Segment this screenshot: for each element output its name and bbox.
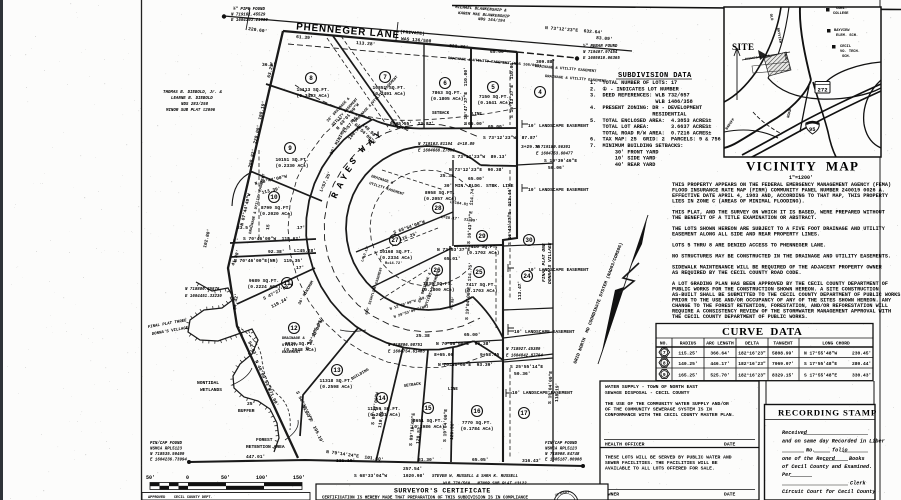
svg-text:6. TAX MAP: 25 GRID: 2 PARC: 6. TAX MAP: 25 GRID: 2 PARCELS: 9 & 756 (590, 137, 721, 143)
svg-text:(0.2224 AC±): (0.2224 AC±) (247, 284, 280, 290)
svg-text:330.43': 330.43' (852, 372, 871, 378)
svg-text:N 718880.25876: N 718880.25876 (185, 288, 220, 292)
svg-text:8: 8 (309, 75, 313, 82)
svg-text:50': 50' (146, 475, 155, 481)
svg-text:LINE: LINE (448, 388, 458, 392)
svg-text:6: 6 (443, 80, 447, 87)
svg-text:¾" PIPE FOUND: ¾" PIPE FOUND (233, 7, 265, 12)
svg-text:15: 15 (265, 224, 271, 230)
svg-text:LINE: LINE (472, 113, 482, 117)
svg-text:3+29.76: 3+29.76 (521, 144, 541, 150)
svg-text:7: 7 (383, 74, 387, 81)
svg-text:230.45': 230.45' (852, 351, 871, 357)
svg-text:E 1604236.73994: E 1604236.73994 (150, 459, 187, 463)
svg-text:Per: Per (782, 472, 791, 478)
svg-text:N 70°46'00"E(NR) 119.35': N 70°46'00"E(NR) 119.35' (234, 258, 303, 264)
svg-text:TOTAL LOT AREA: 3.6637 A: TOTAL LOT AREA: 3.6637 ACRES± (590, 124, 711, 130)
svg-text:25: 25 (475, 269, 483, 276)
svg-text:5808.99': 5808.99' (772, 351, 794, 357)
svg-text:SITE: SITE (732, 42, 755, 52)
svg-text:DONNA'S VILLAGE: DONNA'S VILLAGE (547, 242, 553, 284)
svg-text:S 16°43'37"E 113.44': S 16°43'37"E 113.44' (507, 187, 513, 245)
svg-text:30' FRONT YARD: 30' FRONT YARD (590, 149, 659, 155)
svg-text:LEANNE B. DIEBOLD: LEANNE B. DIEBOLD (171, 97, 213, 101)
svg-text:N 16°47'37"E 110.00': N 16°47'37"E 110.00' (463, 67, 469, 125)
svg-text:10' LANDSCAPE EASEMENT: 10' LANDSCAPE EASEMENT (528, 187, 589, 193)
svg-text:10' LANDSCAPE EASEMENT: 10' LANDSCAPE EASEMENT (528, 123, 589, 129)
svg-text:100': 100' (256, 475, 268, 481)
svg-text:(0.1805 AC±): (0.1805 AC±) (430, 96, 463, 102)
svg-text:RESIDENTIAL: RESIDENTIAL (590, 112, 687, 118)
svg-text:316.43': 316.43' (522, 458, 541, 464)
svg-text:RADIUS: RADIUS (680, 341, 697, 347)
svg-text:NSMCA RPL5123: NSMCA RPL5123 (545, 448, 577, 452)
svg-text:7: 7 (663, 350, 666, 356)
svg-text:1. TOTAL NUMBER OF LOTS: 17: 1. TOTAL NUMBER OF LOTS: 17 (590, 80, 677, 86)
svg-text:95: 95 (809, 127, 815, 133)
svg-text:UTILITY: UTILITY (282, 344, 299, 348)
svg-text:7069.07': 7069.07' (772, 361, 794, 367)
svg-text:Books: Books (849, 456, 865, 462)
svg-text:(0.2020 AC±): (0.2020 AC±) (259, 211, 292, 217)
svg-text:DATE: DATE (724, 442, 735, 448)
svg-text:NDS 283/258: NDS 283/258 (181, 102, 209, 107)
svg-text:N 719161.45529: N 719161.45529 (231, 14, 266, 18)
svg-text:VO. TECH.: VO. TECH. (840, 50, 860, 54)
svg-text:FOREST: FOREST (256, 437, 273, 443)
svg-text:RECORDING STAMP: RECORDING STAMP (778, 408, 877, 418)
svg-text:120.90': 120.90' (449, 421, 456, 441)
svg-text:(0.1641 AC±): (0.1641 AC±) (477, 100, 510, 106)
svg-text:VICINITY MAP: VICINITY MAP (746, 159, 859, 174)
svg-text:(0.3483 AC±): (0.3483 AC±) (296, 93, 329, 99)
svg-text:TANGENT: TANGENT (773, 341, 793, 347)
svg-text:S 19°04'00"E: S 19°04'00"E (442, 409, 449, 443)
svg-text:446.17': 446.17' (710, 361, 729, 367)
svg-text:CONFORMANCE WITH THE CECIL COU: CONFORMANCE WITH THE CECIL COUNTY MASTER… (605, 412, 734, 418)
svg-text:N 17°55'48"W: N 17°55'48"W (804, 351, 837, 357)
svg-text:N 718908.84748: N 718908.84748 (545, 453, 580, 457)
svg-text:THESE LOTS WILL BE SERVED BY P: THESE LOTS WILL BE SERVED BY PUBLIC WATE… (605, 455, 732, 461)
svg-text:182°16'23": 182°16'23" (738, 361, 766, 367)
svg-text:30' MIN. BLDG.: 30' MIN. BLDG. (444, 183, 483, 189)
svg-text:N 719189.56301: N 719189.56301 (536, 146, 571, 150)
svg-text:DELTA: DELTA (745, 341, 759, 347)
svg-text:S 25°55'14"E: S 25°55'14"E (510, 364, 543, 370)
svg-text:and on same day Recorded in Li: and on same day Recorded in Liber (782, 439, 885, 445)
svg-text:257.54': 257.54' (403, 466, 422, 472)
svg-text:81.30': 81.30' (418, 457, 435, 463)
svg-text:N 70°56'00"E 90.38': N 70°56'00"E 90.38' (436, 341, 491, 347)
svg-text:E 1604754.61463: E 1604754.61463 (388, 351, 425, 355)
svg-text:10168 SQ.FT.: 10168 SQ.FT. (379, 249, 412, 255)
svg-text:THE BENEFIT OF A TITLE EXAMINA: THE BENEFIT OF A TITLE EXAMINATION OR AB… (672, 215, 817, 221)
svg-text:STEVEN W. RUSSELL & SARA K. RU: STEVEN W. RUSSELL & SARA K. RUSSELL (432, 475, 519, 479)
svg-text:S 73°12'23"W 89.13': S 73°12'23"W 89.13' (452, 154, 507, 160)
svg-text:NONTIDAL: NONTIDAL (197, 380, 219, 386)
svg-text:65.01': 65.01' (444, 256, 461, 262)
svg-text:N 70°56'00"E 93.39': N 70°56'00"E 93.39' (438, 362, 493, 368)
svg-text:E 1604451.33230: E 1604451.33230 (185, 295, 222, 299)
svg-text:ARC LENGTH: ARC LENGTH (706, 341, 734, 347)
svg-text:MINOR SUB PLAT #2096: MINOR SUB PLAT #2096 (165, 109, 216, 113)
svg-text:23.5': 23.5' (237, 225, 251, 231)
svg-text:15113 SQ.FT.: 15113 SQ.FT. (296, 87, 329, 93)
svg-text:ELEM. SCH.: ELEM. SCH. (836, 34, 858, 38)
svg-text:24: 24 (523, 273, 531, 280)
svg-text:LIES IN ZONE C (AREAS OF MINIM: LIES IN ZONE C (AREAS OF MINIMAL FLOODIN… (672, 199, 805, 205)
svg-text:S 16°43'37"E 110.00': S 16°43'37"E 110.00' (509, 60, 515, 118)
svg-text:of Cecil County and Examined.: of Cecil County and Examined. (782, 464, 872, 470)
svg-text:25': 25' (247, 401, 255, 407)
svg-text:17: 17 (520, 410, 528, 417)
svg-text:65.00': 65.00' (468, 176, 485, 182)
svg-text:10' LANDSCAPE EASEMENT: 10' LANDSCAPE EASEMENT (528, 267, 589, 273)
svg-text:AVAILABLE TO ALL LOTS OFFERED: AVAILABLE TO ALL LOTS OFFERED FOR SALE. (605, 466, 715, 472)
svg-text:COLLEGE: COLLEGE (833, 12, 849, 16)
svg-text:STBK. LINE: STBK. LINE (486, 183, 514, 189)
svg-text:THOMAS B. DIEBOLD, Jr. &: THOMAS B. DIEBOLD, Jr. & (163, 91, 223, 95)
svg-text:R=14.72': R=14.72' (385, 261, 402, 266)
svg-text:RETENTION AREA: RETENTION AREA (246, 444, 285, 450)
svg-text:150': 150' (293, 475, 305, 481)
svg-text:25.38: 25.38 (440, 173, 454, 179)
svg-text:LOTS 5 THRU 8 ARE DENIED ACCES: LOTS 5 THRU 8 ARE DENIED ACCESS TO PHENN… (672, 243, 826, 249)
svg-text:one of the Record: one of the Record (782, 456, 836, 462)
svg-text:17': 17' (296, 265, 304, 271)
svg-text:8958 SQ.FT.: 8958 SQ.FT. (425, 190, 455, 196)
svg-text:Clerk: Clerk (850, 481, 866, 487)
svg-text:2. ① - INDICATES LOT NUMBER: 2. ① - INDICATES LOT NUMBER (590, 86, 680, 92)
svg-text:Circuit Court for Cecil County: Circuit Court for Cecil County (782, 489, 876, 495)
svg-text:FINAL PLAT ONE: FINAL PLAT ONE (541, 243, 547, 282)
svg-text:S 73°12'23"W 87.87': S 73°12'23"W 87.87' (483, 135, 538, 141)
svg-text:FIN/CAP FOUND: FIN/CAP FOUND (545, 441, 577, 446)
svg-text:SURVEYOR'S CERTIFICATE: SURVEYOR'S CERTIFICATE (394, 488, 491, 495)
svg-text:S 19°04'00"E: S 19°04'00"E (547, 371, 554, 405)
svg-text:272: 272 (818, 87, 829, 94)
svg-text:N 72°03'37"E: N 72°03'37"E (437, 247, 470, 253)
svg-text:40' REAR YARD: 40' REAR YARD (590, 162, 655, 168)
svg-text:9: 9 (288, 145, 292, 152)
svg-text:7863 SQ.FT.: 7863 SQ.FT. (432, 90, 462, 96)
svg-text:Received: Received (782, 430, 808, 436)
svg-text:7. MINIMUM BUILDING SETBACKS:: 7. MINIMUM BUILDING SETBACKS: (590, 143, 683, 149)
svg-text:525.70': 525.70' (710, 372, 729, 378)
svg-text:165.25': 165.25' (678, 372, 697, 378)
svg-text:SEWAGE DISPOSAL - CECIL COUNTY: SEWAGE DISPOSAL - CECIL COUNTY (605, 390, 690, 396)
svg-text:12: 12 (290, 325, 298, 332)
svg-text:309.88': 309.88' (536, 59, 555, 65)
svg-text:50': 50' (221, 475, 230, 481)
svg-text:0: 0 (186, 475, 189, 481)
svg-text:AS REQUIRED BY THE CECIL COUNT: AS REQUIRED BY THE CECIL COUNTY ROAD COD… (672, 270, 802, 276)
svg-text:65.00': 65.00' (468, 121, 485, 127)
svg-text:27: 27 (391, 237, 399, 244)
svg-text:10' SIDE YARD: 10' SIDE YARD (590, 156, 655, 162)
svg-text:10' LANDSCAPE EASEMENT: 10' LANDSCAPE EASEMENT (512, 390, 573, 396)
svg-text:S 19°39'46"E: S 19°39'46"E (544, 158, 577, 164)
svg-text:EASEMENT: EASEMENT (282, 351, 301, 355)
svg-text:29: 29 (478, 233, 486, 240)
svg-text:7150 SQ.FT.: 7150 SQ.FT. (479, 94, 509, 100)
svg-text:BUFFER: BUFFER (238, 408, 255, 414)
svg-text:65.00': 65.00' (490, 49, 507, 55)
svg-text:No.: No. (806, 448, 815, 454)
svg-text:SEWER FACILITIES. THE FACILITI: SEWER FACILITIES. THE FACILITIES WILL BE (605, 460, 718, 466)
svg-text:16: 16 (473, 408, 481, 415)
svg-text:E 1604668.27802: E 1604668.27802 (418, 150, 455, 154)
svg-text:50.36': 50.36' (514, 371, 531, 377)
svg-text:NSMCA RPL5123: NSMCA RPL5123 (150, 448, 182, 452)
svg-text:SETBACK: SETBACK (432, 112, 450, 116)
svg-text:4: 4 (538, 89, 542, 96)
svg-text:E 1604193.21630: E 1604193.21630 (231, 19, 268, 23)
svg-text:PIN/CAP FOUND: PIN/CAP FOUND (150, 441, 182, 446)
svg-text:9: 9 (663, 372, 666, 378)
svg-text:E 1604842.87784: E 1604842.87784 (506, 355, 543, 359)
svg-text:DRAINAGE &: DRAINAGE & (282, 337, 306, 341)
svg-text:L=45.28': L=45.28' (294, 248, 316, 254)
svg-text:280.44': 280.44' (852, 361, 871, 367)
svg-text:WETLANDS: WETLANDS (200, 387, 222, 393)
svg-text:S 70°46'00"W 115.62': S 70°46'00"W 115.62' (243, 236, 301, 242)
svg-text:5. TOTAL ENCLOSED AREA: 4.38: 5. TOTAL ENCLOSED AREA: 4.3853 ACRES± (590, 118, 711, 124)
svg-text:65.05': 65.05' (472, 457, 489, 463)
svg-text:WLB 1486/358: WLB 1486/358 (590, 99, 693, 105)
svg-text:8329.15': 8329.15' (772, 372, 794, 378)
svg-text:366.64': 366.64' (710, 351, 729, 357)
svg-text:EASEMENT ALONG ALL SIDE AND RE: EASEMENT ALONG ALL SIDE AND REAR PROPERT… (672, 232, 820, 238)
svg-text:92.38': 92.38' (268, 249, 285, 255)
svg-text:111.19': 111.19' (336, 458, 355, 464)
svg-text:E 1605010.06365: E 1605010.06365 (583, 57, 620, 61)
svg-text:(0.1702 AC±): (0.1702 AC±) (466, 250, 499, 256)
svg-text:182°16'23": 182°16'23" (738, 351, 766, 357)
svg-text:BAYVIEW: BAYVIEW (834, 29, 850, 33)
svg-text:15: 15 (424, 405, 432, 412)
svg-text:WATER SUPPLY - TOWN OF NORTH E: WATER SUPPLY - TOWN OF NORTH EAST (605, 384, 698, 390)
svg-text:5: 5 (491, 84, 495, 91)
svg-text:8799 SQ.FT.: 8799 SQ.FT. (261, 205, 291, 211)
svg-text:THE CECIL COUNTY DEPARTMENT OF: THE CECIL COUNTY DEPARTMENT OF PUBLIC WO… (672, 314, 808, 320)
svg-text:28: 28 (434, 205, 442, 212)
svg-text:10' LANDSCAPE EASEMENT: 10' LANDSCAPE EASEMENT (514, 329, 575, 335)
svg-text:E 1604753.60477: E 1604753.60477 (536, 153, 573, 157)
svg-text:7770 SQ.FT.: 7770 SQ.FT. (462, 420, 492, 426)
svg-text:140.25': 140.25' (678, 361, 697, 367)
svg-text:(0.2334 AC±): (0.2334 AC±) (379, 255, 412, 261)
svg-text:NO STRUCTURES MAY BE CONSTRUCT: NO STRUCTURES MAY BE CONSTRUCTED IN THE … (672, 254, 891, 260)
svg-text:25.38: 25.38 (416, 333, 430, 339)
svg-text:NO.: NO. (660, 341, 668, 347)
svg-text:S 17°55'48"E: S 17°55'48"E (804, 372, 837, 378)
svg-text:50.06': 50.06' (548, 165, 565, 171)
svg-text:115.25': 115.25' (678, 351, 697, 357)
svg-text:447.01': 447.01' (246, 454, 265, 460)
svg-text:10151 SQ.FT.: 10151 SQ.FT. (275, 157, 308, 163)
svg-text:N 73°12'23"E 90.38': N 73°12'23"E 90.38' (449, 167, 504, 173)
svg-text:4. PRESENT ZONING: DR - DEVEL: 4. PRESENT ZONING: DR - DEVELOPMENT (590, 105, 702, 111)
svg-text:10: 10 (270, 194, 278, 201)
svg-text:7416 SQ.FT.: 7416 SQ.FT. (468, 244, 498, 250)
svg-text:N 719407.97454: N 719407.97454 (583, 51, 618, 55)
svg-text:APPROVED CECIL COUNTY DEPT.: APPROVED CECIL COUNTY DEPT. (148, 496, 213, 500)
svg-text:CECIL: CECIL (840, 45, 852, 49)
svg-text:TOTAL ROAD R/W AREA: 0.7216 A: TOTAL ROAD R/W AREA: 0.7216 ACRES± (590, 130, 711, 136)
svg-text:(0.1784 AC±): (0.1784 AC±) (460, 426, 493, 432)
svg-text:CONL.: CONL. (836, 7, 847, 11)
svg-text:E 1605187.00908: E 1605187.00908 (545, 459, 582, 463)
svg-text:THE USE OF THE COMMUNITY WATER: THE USE OF THE COMMUNITY WATER SUPPLY AN… (605, 401, 729, 407)
svg-text:1020.98': 1020.98' (403, 473, 425, 479)
svg-text:13: 13 (333, 367, 341, 374)
svg-text:9+58.45: 9+58.45 (480, 352, 500, 358)
svg-text:11318 SQ.FT.: 11318 SQ.FT. (319, 378, 352, 384)
svg-text:3. DEED REFERENCES: WLB 732/6: 3. DEED REFERENCES: WLB 732/657 (590, 93, 690, 99)
svg-text:S 68°33'04"W: S 68°33'04"W (354, 473, 387, 479)
svg-text:DATE: DATE (724, 492, 735, 498)
svg-text:CURVE DATA: CURVE DATA (722, 326, 802, 338)
svg-text:1"=1200': 1"=1200' (789, 175, 813, 181)
svg-text:CERTIFICATION IS HEREBY MADE T: CERTIFICATION IS HEREBY MADE THAT PREPAR… (322, 497, 529, 500)
svg-text:N 718927.45389: N 718927.45389 (506, 348, 541, 352)
svg-text:S 17°55'48"E: S 17°55'48"E (804, 361, 837, 367)
svg-text:8: 8 (663, 361, 666, 367)
svg-text:5': 5' (233, 238, 239, 244)
svg-text:N 718535.50409: N 718535.50409 (150, 453, 185, 457)
svg-text:folio: folio (832, 448, 848, 454)
svg-text:N 718896.98751: N 718896.98751 (388, 344, 423, 348)
svg-text:(0.2330 AC±): (0.2330 AC±) (275, 163, 308, 169)
svg-text:9689 SQ.FT.: 9689 SQ.FT. (249, 278, 279, 284)
svg-text:HEALTH OFFICER: HEALTH OFFICER (605, 442, 645, 448)
svg-text:N 719163.81194 4+18.89: N 719163.81194 4+18.89 (418, 143, 475, 147)
svg-text:182°16'23": 182°16'23" (738, 372, 766, 378)
svg-text:65.00': 65.00' (488, 124, 505, 130)
svg-text:LONG CHORD: LONG CHORD (822, 341, 850, 347)
svg-text:OF THE COMMUNITY SEWERAGE SYST: OF THE COMMUNITY SEWERAGE SYSTEM IS IN (605, 407, 712, 413)
svg-text:30: 30 (525, 237, 533, 244)
svg-text:65.00': 65.00' (464, 332, 481, 338)
svg-text:SCH.: SCH. (842, 55, 851, 59)
